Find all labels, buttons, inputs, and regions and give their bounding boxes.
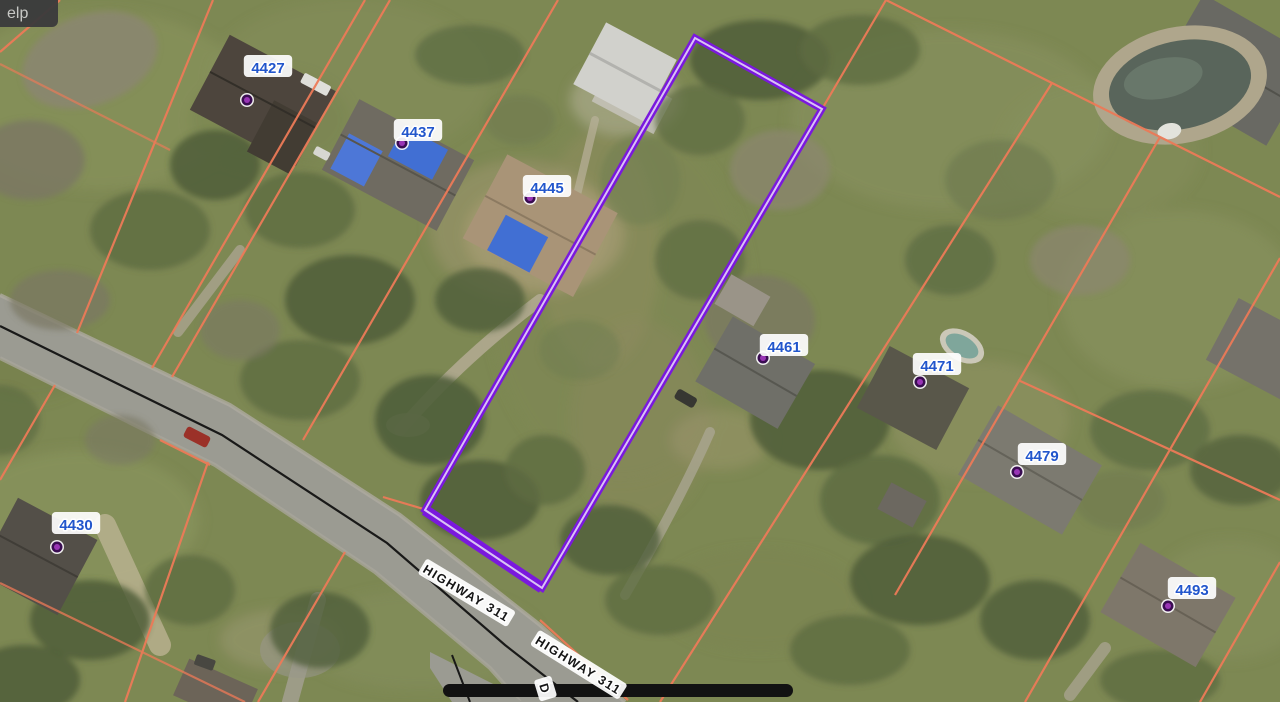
address-label[interactable]: 4461: [767, 339, 800, 356]
marker-dot[interactable]: [1165, 603, 1171, 609]
address-label[interactable]: 4430: [59, 517, 92, 534]
photo-tint: [0, 0, 1280, 702]
address-label[interactable]: 4437: [401, 124, 434, 141]
help-menu-text: elp: [7, 5, 28, 22]
gis-map-viewport[interactable]: HIGHWAY 311HIGHWAY 311D 4427443744454461…: [0, 0, 1280, 702]
marker-dot[interactable]: [54, 544, 60, 550]
address-label[interactable]: 4479: [1025, 448, 1058, 465]
marker-dot[interactable]: [244, 97, 250, 103]
aerial-map[interactable]: HIGHWAY 311HIGHWAY 311D 4427443744454461…: [0, 0, 1280, 702]
help-menu-fragment[interactable]: elp: [0, 0, 58, 27]
marker-dot[interactable]: [917, 379, 923, 385]
address-label[interactable]: 4471: [920, 358, 953, 375]
marker-dot[interactable]: [1014, 469, 1020, 475]
address-label[interactable]: 4427: [251, 60, 284, 77]
address-label[interactable]: 4445: [530, 180, 563, 197]
address-label[interactable]: 4493: [1175, 582, 1208, 599]
